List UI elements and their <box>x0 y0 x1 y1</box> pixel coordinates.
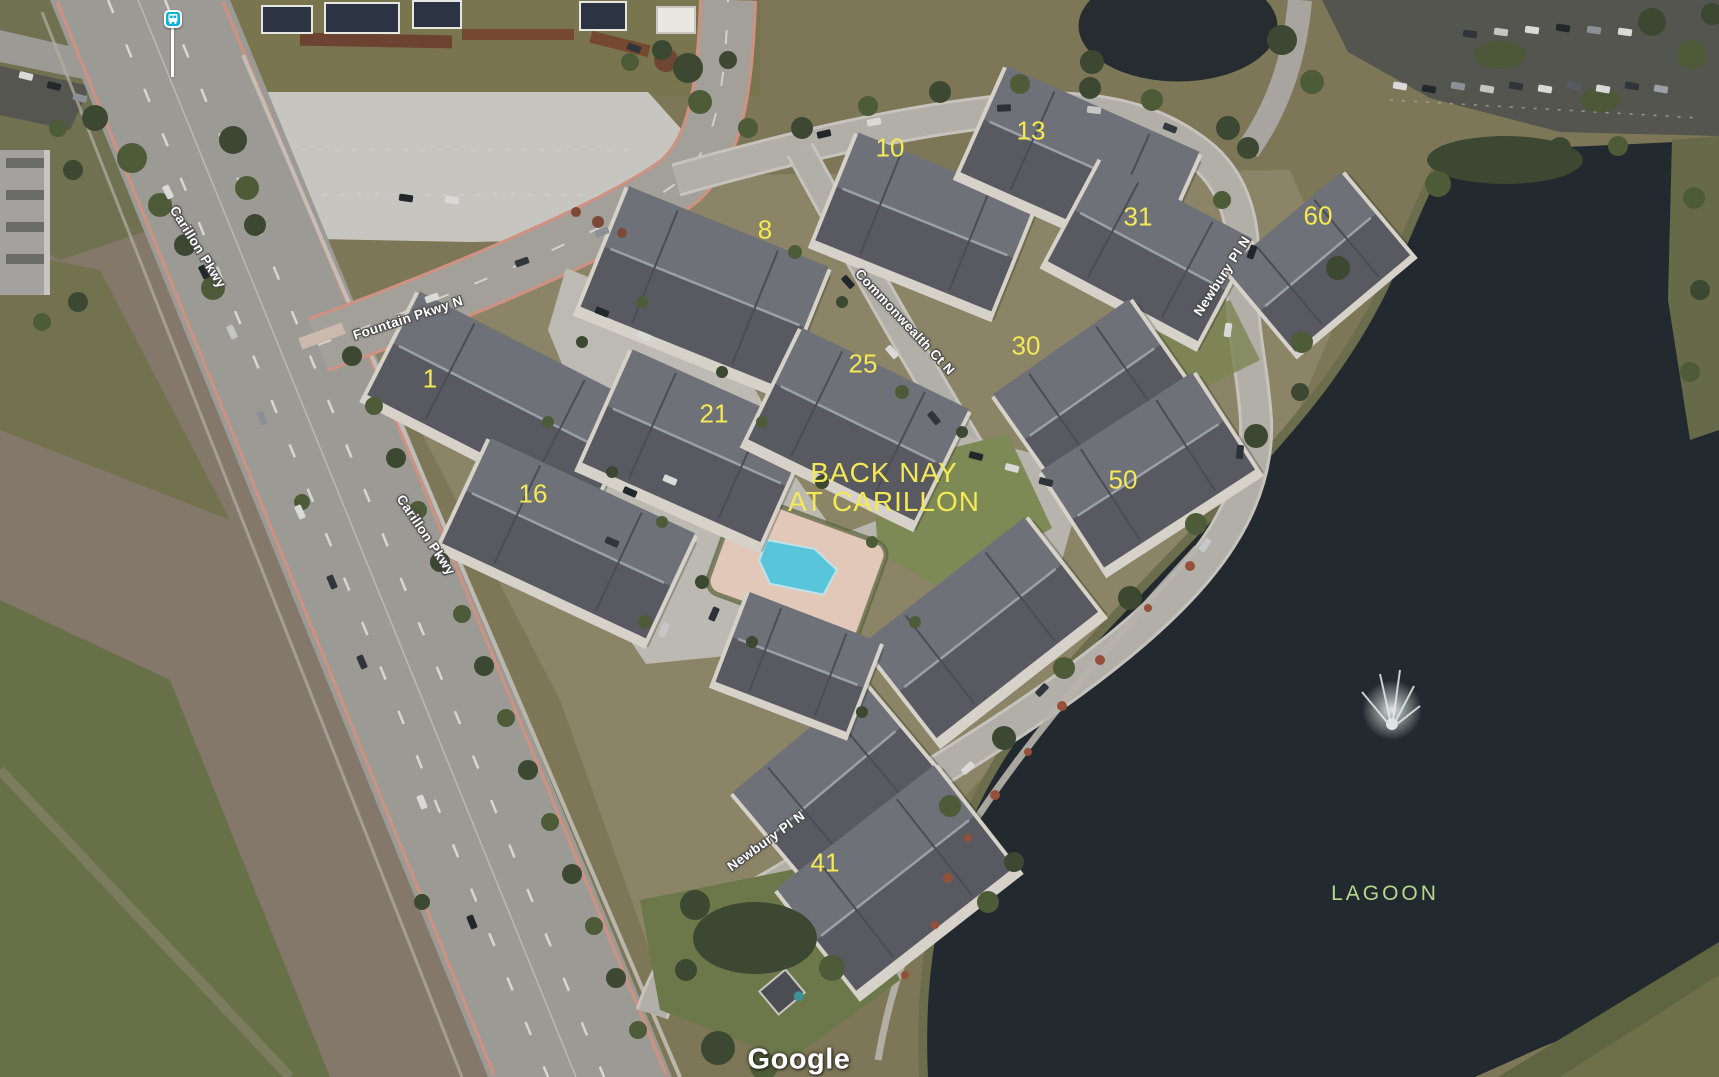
bus-icon <box>164 10 182 28</box>
bus-stop-pole <box>171 28 174 77</box>
satellite-map[interactable]: Carillon Pkwy Carillon Pkwy Fountain Pkw… <box>0 0 1719 1077</box>
satellite-imagery <box>0 0 1719 1077</box>
bus-stop-icon[interactable] <box>164 10 182 28</box>
